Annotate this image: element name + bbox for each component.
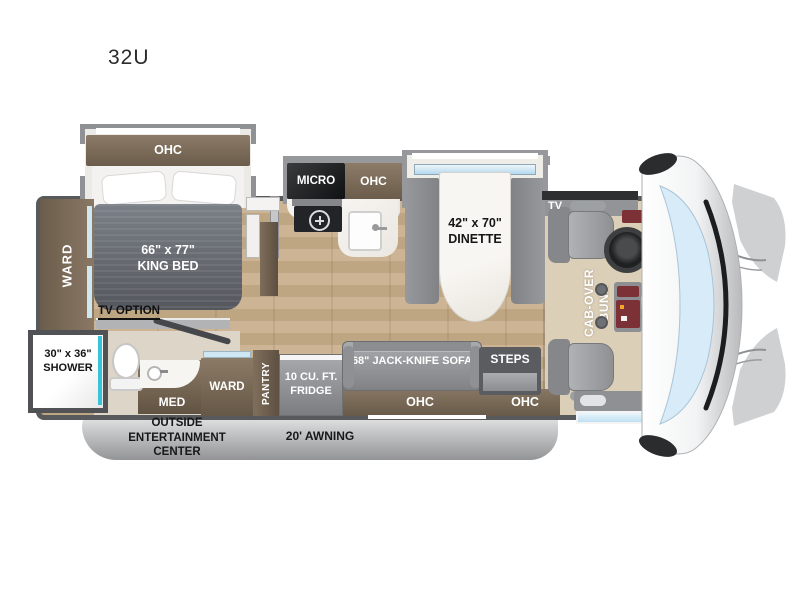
dinette-bench-left xyxy=(405,178,439,304)
bedroom-overhead-cabinet: OHC xyxy=(86,135,250,166)
bedroom-window-right xyxy=(251,144,256,176)
bed-type-label: KING BED xyxy=(94,258,242,274)
entry-steps: STEPS xyxy=(479,347,541,395)
kitchen-sink-icon xyxy=(348,211,382,251)
kitchen-overhead-cabinet: OHC xyxy=(345,163,402,199)
pantry: PANTRY xyxy=(253,350,279,416)
floorplan-model-title: 32U xyxy=(108,46,150,70)
cup-holder-icon xyxy=(595,316,608,329)
awning-label: 20' AWNING xyxy=(268,429,372,443)
console-indicator xyxy=(620,305,624,309)
ohc-under-sofa-label: OHC xyxy=(360,389,480,416)
pillow-icon xyxy=(101,170,167,205)
ward-window xyxy=(203,351,251,358)
fridge-counter-strip xyxy=(280,355,342,360)
passenger-seat-back xyxy=(548,339,570,395)
microwave: MICRO xyxy=(287,163,345,199)
driver-seat-back xyxy=(548,207,570,263)
range-hood xyxy=(292,199,342,206)
bed-pillows xyxy=(92,166,244,208)
dinette-slideout-roof xyxy=(412,153,538,159)
bedroom-window-left xyxy=(80,144,85,176)
outside-line-2: ENTERTAINMENT xyxy=(112,431,242,446)
pantry-label: PANTRY xyxy=(261,362,272,405)
bedroom-wardrobe-label: WARD xyxy=(60,243,75,287)
tv-label: TV xyxy=(548,200,562,212)
bedroom-wardrobe: WARD xyxy=(40,199,94,331)
driver-seat-armrest xyxy=(570,201,606,211)
awning-rail xyxy=(368,415,486,419)
kitchen-faucet-handle xyxy=(378,227,387,230)
shower-label: 30" x 36" SHOWER xyxy=(33,335,103,375)
toilet-icon xyxy=(112,343,140,379)
living-wardrobe: WARD xyxy=(201,358,253,416)
bath-sink-icon xyxy=(147,366,162,381)
floorplan-canvas: 32U OUTSIDE ENTERTAINMENT CENTER 20' AWN… xyxy=(0,0,800,600)
console-button xyxy=(621,316,627,321)
refrigerator: 10 CU. FT. FRIDGE xyxy=(279,354,343,416)
entry-steps-tread xyxy=(483,373,537,391)
front-cap xyxy=(628,140,800,470)
shower-glass-accent xyxy=(98,336,102,405)
cooktop xyxy=(294,206,342,232)
shower-name-label: SHOWER xyxy=(33,361,103,375)
dinette-name-label: DINETTE xyxy=(440,231,510,247)
toilet-tank-icon xyxy=(109,377,143,391)
dinette-table: 42" x 70" DINETTE xyxy=(439,172,511,322)
outside-line-1: OUTSIDE xyxy=(112,416,242,431)
king-bed: 66" x 77" KING BED xyxy=(94,204,242,310)
fridge-name-label: FRIDGE xyxy=(280,384,342,398)
shower-stall: 30" x 36" SHOWER xyxy=(28,330,108,413)
passenger-seat xyxy=(568,343,614,391)
outside-line-3: CENTER xyxy=(112,445,242,460)
wardrobe-shelf xyxy=(87,206,92,258)
entry-door-handle xyxy=(580,395,606,406)
bath-faucet-icon xyxy=(160,370,168,373)
nightstand xyxy=(246,214,260,258)
jack-knife-sofa: 68" JACK-KNIFE SOFA xyxy=(342,341,482,391)
bedroom-dresser xyxy=(260,222,278,296)
outside-entertainment-label: OUTSIDE ENTERTAINMENT CENTER xyxy=(112,416,242,460)
cup-holder-icon xyxy=(595,283,608,296)
tv-option-label: TV OPTION xyxy=(98,305,160,320)
sofa-label: 68" JACK-KNIFE SOFA xyxy=(343,355,481,367)
wardrobe-shelf xyxy=(87,266,92,318)
burner-icon xyxy=(309,210,330,231)
steps-label: STEPS xyxy=(479,352,541,366)
fridge-size-label: 10 CU. FT. xyxy=(280,370,342,384)
sofa-back xyxy=(353,342,471,352)
bedroom-counter xyxy=(246,197,280,211)
shower-size-label: 30" x 36" xyxy=(33,347,103,361)
dinette-size-label: 42" x 70" xyxy=(440,215,510,231)
dinette-bench-right xyxy=(511,178,545,304)
sofa-armrest xyxy=(343,346,354,388)
cab-tv xyxy=(542,191,638,200)
bedroom-slideout-roof xyxy=(96,128,240,134)
med-label: MED xyxy=(138,395,206,409)
pillow-icon xyxy=(171,170,237,205)
bunk-label-line1: CAB-OVER xyxy=(582,269,597,337)
bed-size-label: 66" x 77" xyxy=(94,242,242,258)
